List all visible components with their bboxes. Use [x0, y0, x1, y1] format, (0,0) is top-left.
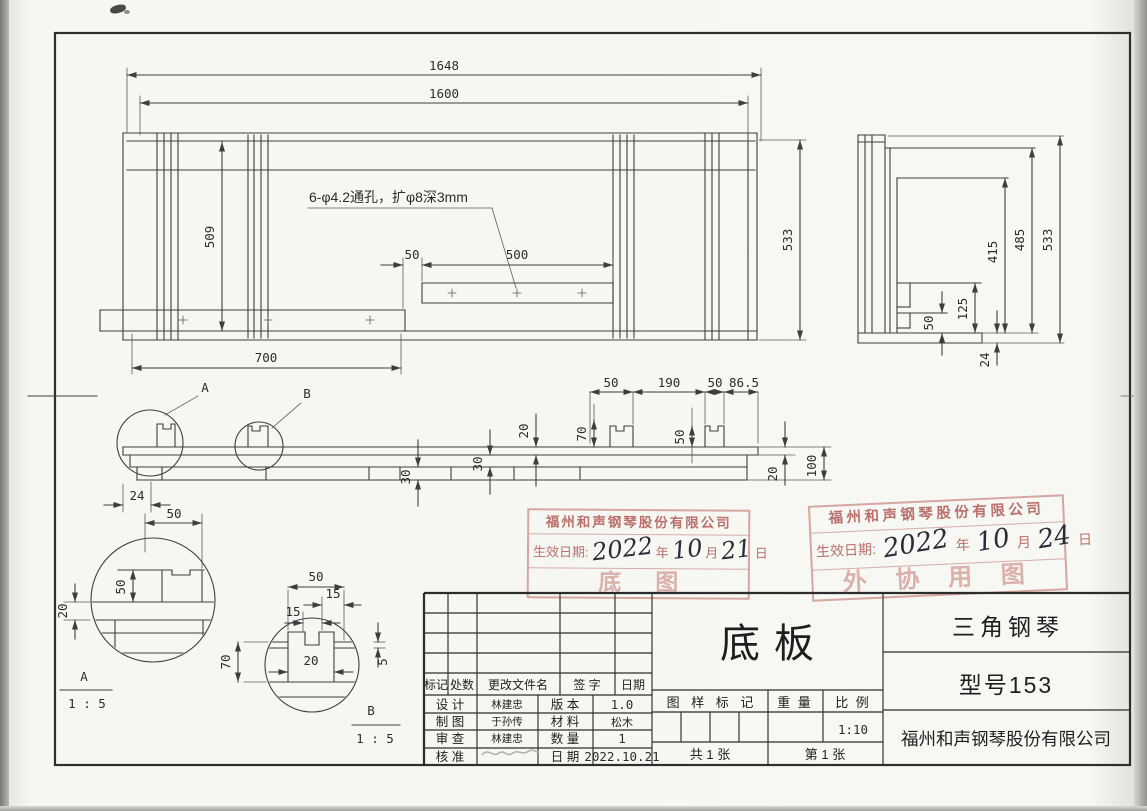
dim-front-span: 500: [506, 247, 529, 262]
dim-detail-a-50w: 50: [166, 506, 181, 521]
company-name: 福州和声钢琴股份有限公司: [901, 729, 1111, 749]
detail-callout-a: A: [201, 380, 209, 395]
product-name: 三角钢琴: [952, 614, 1064, 640]
value-date: 2022.10.21: [584, 749, 659, 764]
dim-detail-b-50: 50: [308, 569, 323, 584]
dim-side-485: 485: [1012, 229, 1027, 252]
approver-signature: [482, 750, 539, 755]
dim-sec-50b: 50: [707, 375, 722, 390]
name-design: 林建忠: [491, 698, 523, 711]
detail-b-scale: 1 : 5: [356, 731, 394, 746]
detail-b: 50 15 15 20 70 5 B 1 : 5: [218, 569, 400, 746]
dim-sec-20b: 20: [765, 466, 780, 481]
role-check: 审 查: [436, 731, 465, 746]
front-view: 1648 1600 509 700 533 50 500 6-φ4.2通孔，扩φ…: [100, 58, 806, 374]
pattern-mark-label: 图 样 标 记: [667, 695, 758, 710]
prop-version: 版 本: [551, 698, 580, 712]
dim-sec-86-5: 86.5: [729, 375, 759, 390]
section-view: A B 50 190 50 86.5 70 50 20 30 30: [117, 375, 831, 506]
role-approve: 核 准: [436, 750, 464, 764]
dim-detail-a-24: 24: [129, 488, 144, 503]
name-draft: 于孙传: [491, 715, 523, 728]
value-quantity: 1: [618, 731, 626, 746]
dim-detail-a-20: 20: [55, 603, 70, 618]
drawing-linework: .dim{marker-start:url(#arr);marker-end:u…: [0, 0, 1147, 811]
scanned-drawing-page: 福州和声钢琴股份有限公司 生效日期: 2022 年 10 月 21 日 底图 福…: [0, 0, 1147, 811]
rev-header-mark: 标记: [424, 678, 448, 692]
part-name: 底板: [720, 622, 828, 666]
dim-side-415: 415: [985, 241, 1000, 264]
dim-front-inner: 1600: [429, 86, 459, 101]
scan-edge-bottom: [0, 806, 1147, 811]
prop-date: 日 期: [551, 750, 579, 764]
detail-a: 24 50 50 20 A 1 : 5: [55, 482, 218, 711]
dim-sec-20a: 20: [516, 423, 531, 438]
rev-header-file: 更改文件名: [488, 677, 548, 692]
dim-front-depth: 533: [780, 229, 795, 252]
detail-a-label: A: [80, 669, 88, 684]
sheets-total: 共 1 张: [690, 747, 730, 762]
dim-detail-a-50h: 50: [113, 579, 128, 594]
dim-side-533: 533: [1040, 229, 1055, 252]
detail-callout-b: B: [303, 386, 311, 401]
dim-sec-50a: 50: [603, 375, 618, 390]
scale-value: 1:10: [838, 722, 868, 737]
dim-side-50: 50: [921, 315, 936, 330]
dim-side-125: 125: [955, 298, 970, 321]
border-frame: [28, 33, 1146, 765]
scan-edge-left: [0, 0, 9, 811]
detail-a-scale: 1 : 5: [68, 696, 106, 711]
model-number: 型号153: [959, 672, 1053, 698]
name-check: 林建忠: [491, 732, 523, 745]
rev-header-date: 日期: [621, 678, 645, 692]
dim-sec-100: 100: [804, 455, 819, 478]
detail-b-label: B: [367, 703, 375, 718]
dim-sec-50c: 50: [672, 429, 687, 444]
role-draft: 制 图: [436, 715, 464, 729]
dim-front-height: 509: [202, 226, 217, 249]
value-version: 1.0: [611, 697, 634, 712]
dim-sec-70: 70: [574, 426, 589, 441]
dim-detail-b-20: 20: [303, 653, 318, 668]
rev-header-count: 处数: [450, 677, 474, 692]
hole-center-marks: [179, 289, 586, 324]
sheet-number: 第 1 张: [805, 747, 845, 762]
side-view: 125 415 485 533 50 24: [858, 135, 1064, 368]
dim-sec-30b: 30: [470, 456, 485, 471]
scan-edge-right: [1134, 0, 1147, 811]
dim-front-total: 1648: [429, 58, 459, 73]
weight-label: 重 量: [777, 695, 813, 710]
dim-detail-b-15a: 15: [325, 586, 340, 601]
role-design: 设 计: [436, 697, 464, 712]
dim-front-offset: 50: [404, 247, 419, 262]
hole-annotation: 6-φ4.2通孔，扩φ8深3mm: [309, 189, 468, 205]
prop-material: 材 料: [551, 715, 580, 729]
dim-sec-190: 190: [658, 375, 681, 390]
prop-quantity: 数 量: [551, 731, 579, 746]
dim-detail-b-15b: 15: [285, 604, 300, 619]
scale-label: 比 例: [835, 695, 871, 710]
rev-header-sign: 签 字: [573, 677, 600, 692]
dim-sec-30a: 30: [398, 469, 413, 484]
dim-side-24: 24: [977, 352, 992, 367]
dim-detail-b-70: 70: [218, 654, 233, 669]
dim-front-bottom: 700: [255, 350, 278, 365]
value-material: 松木: [611, 715, 633, 729]
dim-detail-b-5: 5: [375, 658, 390, 666]
